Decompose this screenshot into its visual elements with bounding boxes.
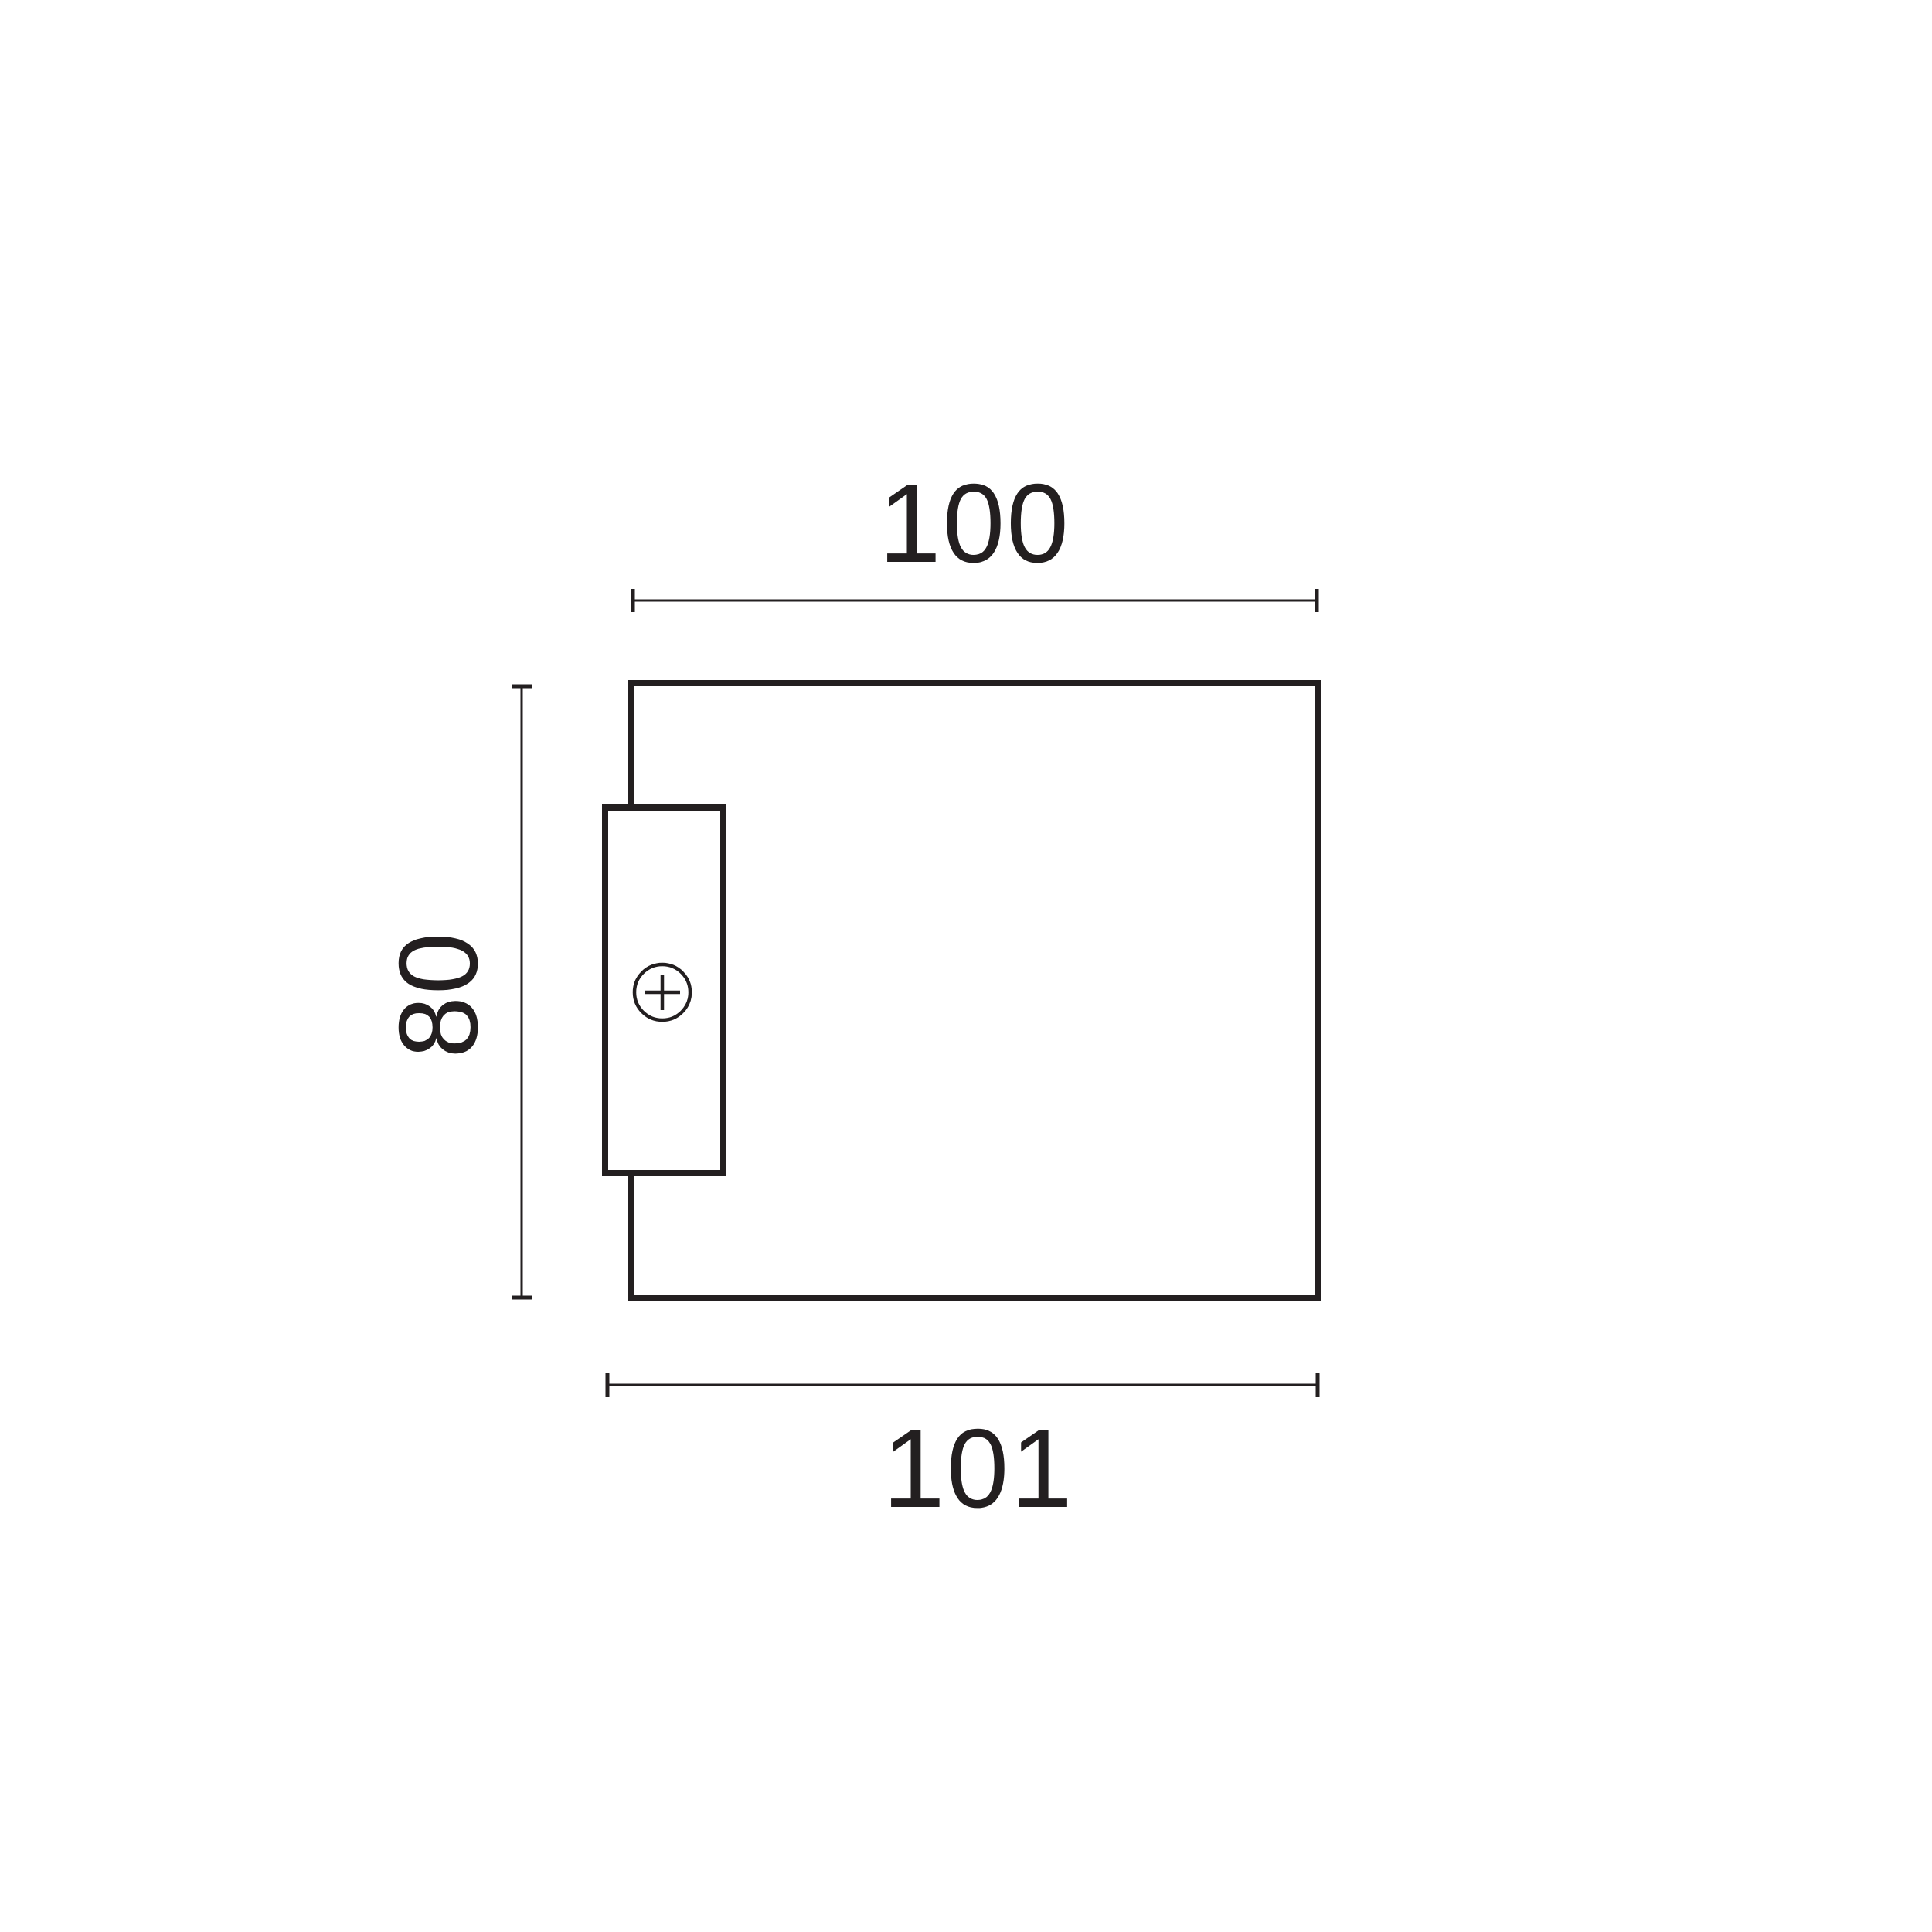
product-body-outline [631, 683, 1318, 1298]
mounting-plate-outline [605, 808, 723, 1173]
left-dimension: 80 [376, 686, 532, 1298]
dimension-drawing-page: 100 80 101 [0, 0, 1932, 1932]
bottom-dimension-label: 101 [883, 1406, 1074, 1531]
top-dimension: 100 [633, 461, 1317, 612]
left-dimension-label: 80 [376, 930, 501, 1058]
dimension-drawing: 100 80 101 [0, 0, 1932, 1932]
bottom-dimension: 101 [607, 1373, 1318, 1531]
top-dimension-label: 100 [879, 461, 1070, 586]
